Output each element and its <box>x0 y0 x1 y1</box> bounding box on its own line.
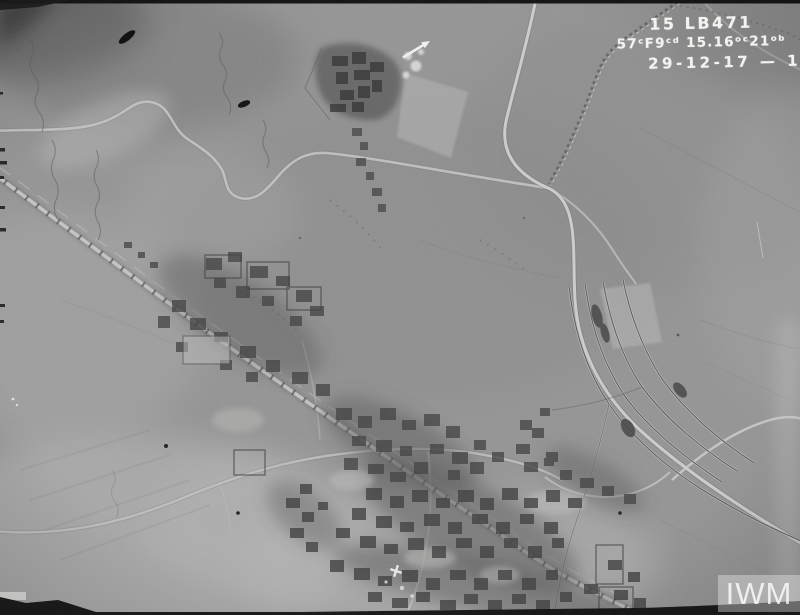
iwm-watermark: IWM <box>718 575 800 612</box>
photo-render <box>0 0 800 615</box>
aerial-photograph: 15 LB471 57ᶜF9ᶜᵈ 15.16ᵒᶜ21ᵒᵇ 29-12-17 — … <box>0 0 800 615</box>
iwm-watermark-text: IWM <box>726 578 793 609</box>
film-grain <box>0 0 800 615</box>
